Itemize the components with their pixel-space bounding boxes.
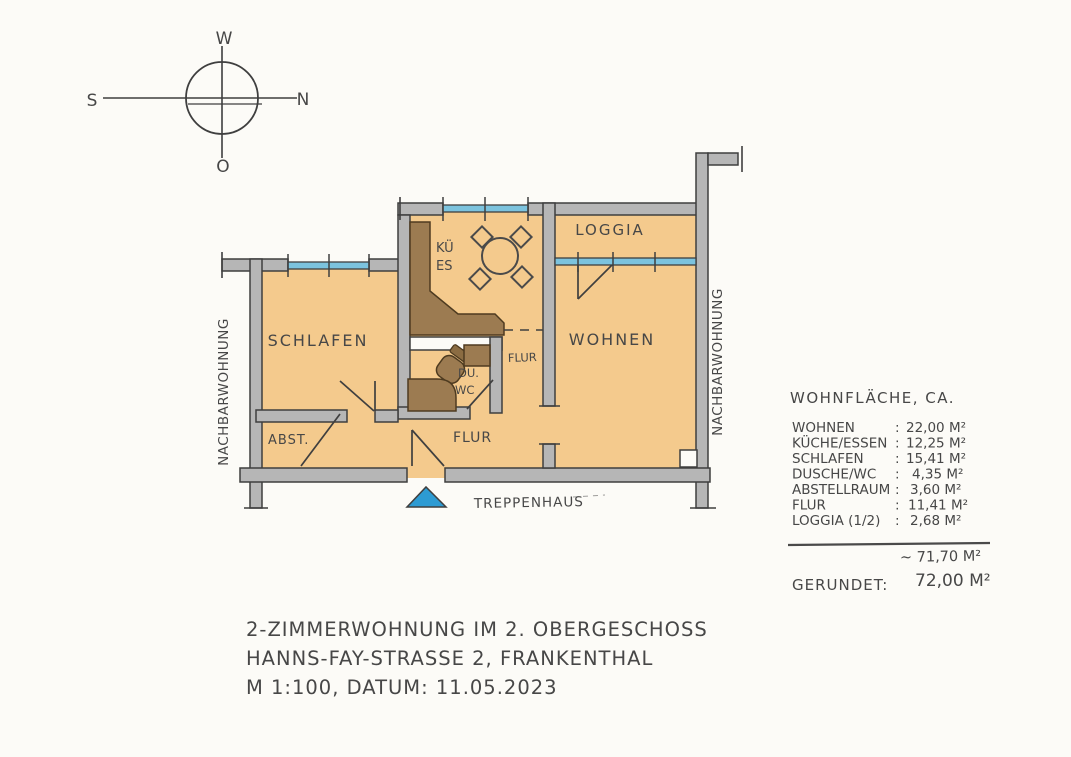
row-value: 4,35 M² bbox=[912, 467, 963, 483]
row-label: SCHLAFEN bbox=[792, 451, 864, 467]
area-table-header: WOHNFLÄCHE, CA. bbox=[790, 388, 955, 407]
bath-sink bbox=[464, 345, 490, 366]
label-nachbarwohnung-right: NACHBARWOHNUNG bbox=[710, 288, 726, 436]
row-label: FLUR bbox=[792, 498, 826, 514]
wall-living-divider bbox=[543, 203, 555, 406]
row-value: 15,41 M² bbox=[906, 451, 966, 467]
row-label: ABSTELLRAUM bbox=[792, 482, 890, 498]
title-line-1: 2-ZIMMERWOHNUNG IM 2. OBERGESCHOSS bbox=[246, 618, 708, 641]
label-treppenhaus: TREPPENHAUS bbox=[473, 494, 584, 512]
shower bbox=[408, 379, 456, 411]
area-table-row: LOGGIA (1/2) : 2,68 M² bbox=[792, 513, 961, 529]
label-nachbarwohnung-left: NACHBARWOHNUNG bbox=[216, 318, 232, 466]
room-label-flur-lower: FLUR bbox=[453, 430, 492, 446]
floor-plan-sheet: W S N O bbox=[0, 0, 1071, 757]
area-table-row: ABSTELLRAUM : 3,60 M² bbox=[792, 482, 961, 498]
row-label: KÜCHE/ESSEN bbox=[792, 434, 887, 452]
row-label: WOHNEN bbox=[792, 420, 855, 436]
room-label-flur-upper: FLUR bbox=[508, 350, 537, 365]
compass-label-east: O bbox=[216, 157, 229, 177]
room-label-loggia: LOGGIA bbox=[575, 221, 645, 239]
row-label: DUSCHE/WC bbox=[792, 467, 876, 483]
compass-label-north: N bbox=[297, 90, 310, 110]
wall-segment bbox=[375, 410, 398, 422]
compass-label-south: S bbox=[87, 91, 98, 111]
area-table-rounded-value: 72,00 M² bbox=[915, 571, 991, 591]
wall-segment bbox=[398, 203, 443, 215]
room-label-dusche-1: DU. bbox=[458, 366, 479, 380]
duct-column bbox=[680, 450, 697, 467]
wall-bottom-left bbox=[240, 468, 407, 482]
row-value: 3,60 M² bbox=[910, 482, 961, 498]
row-colon: : bbox=[895, 451, 900, 467]
wall-living-divider-stub bbox=[543, 444, 555, 468]
title-line-2: HANNS-FAY-STRASSE 2, FRANKENTHAL bbox=[246, 647, 653, 670]
area-table-subtotal: ~ 71,70 M² bbox=[900, 549, 981, 566]
wall-bottom-right bbox=[445, 468, 710, 482]
wall-bath-right bbox=[490, 337, 502, 413]
window-loggia-sill bbox=[555, 258, 696, 265]
row-value: 22,00 M² bbox=[906, 420, 966, 436]
room-label-kueche-1: KÜ bbox=[436, 239, 454, 256]
row-colon: : bbox=[895, 498, 900, 514]
row-colon: : bbox=[895, 436, 900, 452]
row-value: 2,68 M² bbox=[910, 513, 961, 529]
wall-segment bbox=[708, 153, 738, 165]
row-label: LOGGIA (1/2) bbox=[792, 513, 880, 529]
room-label-dusche-2: WC bbox=[455, 383, 474, 397]
wall-storage-top bbox=[256, 410, 347, 422]
title-line-3: M 1:100, DATUM: 11.05.2023 bbox=[246, 676, 558, 699]
row-value: 11,41 M² bbox=[908, 498, 968, 514]
room-label-schlafen: SCHLAFEN bbox=[268, 331, 369, 350]
row-colon: : bbox=[895, 420, 900, 436]
room-label-abstellraum: ABST. bbox=[268, 433, 309, 448]
room-label-wohnen: WOHNEN bbox=[569, 330, 656, 349]
area-table-row: KÜCHE/ESSEN : 12,25 M² bbox=[792, 434, 966, 452]
row-colon: : bbox=[895, 467, 900, 483]
row-colon: : bbox=[895, 482, 900, 498]
compass-label-west: W bbox=[216, 29, 233, 49]
area-table-rounded-label: GERUNDET: bbox=[792, 576, 888, 594]
wall-right-outer bbox=[696, 153, 708, 508]
row-value: 12,25 M² bbox=[906, 436, 966, 452]
room-label-kueche-2: ES bbox=[436, 259, 452, 274]
row-colon: : bbox=[895, 513, 900, 529]
